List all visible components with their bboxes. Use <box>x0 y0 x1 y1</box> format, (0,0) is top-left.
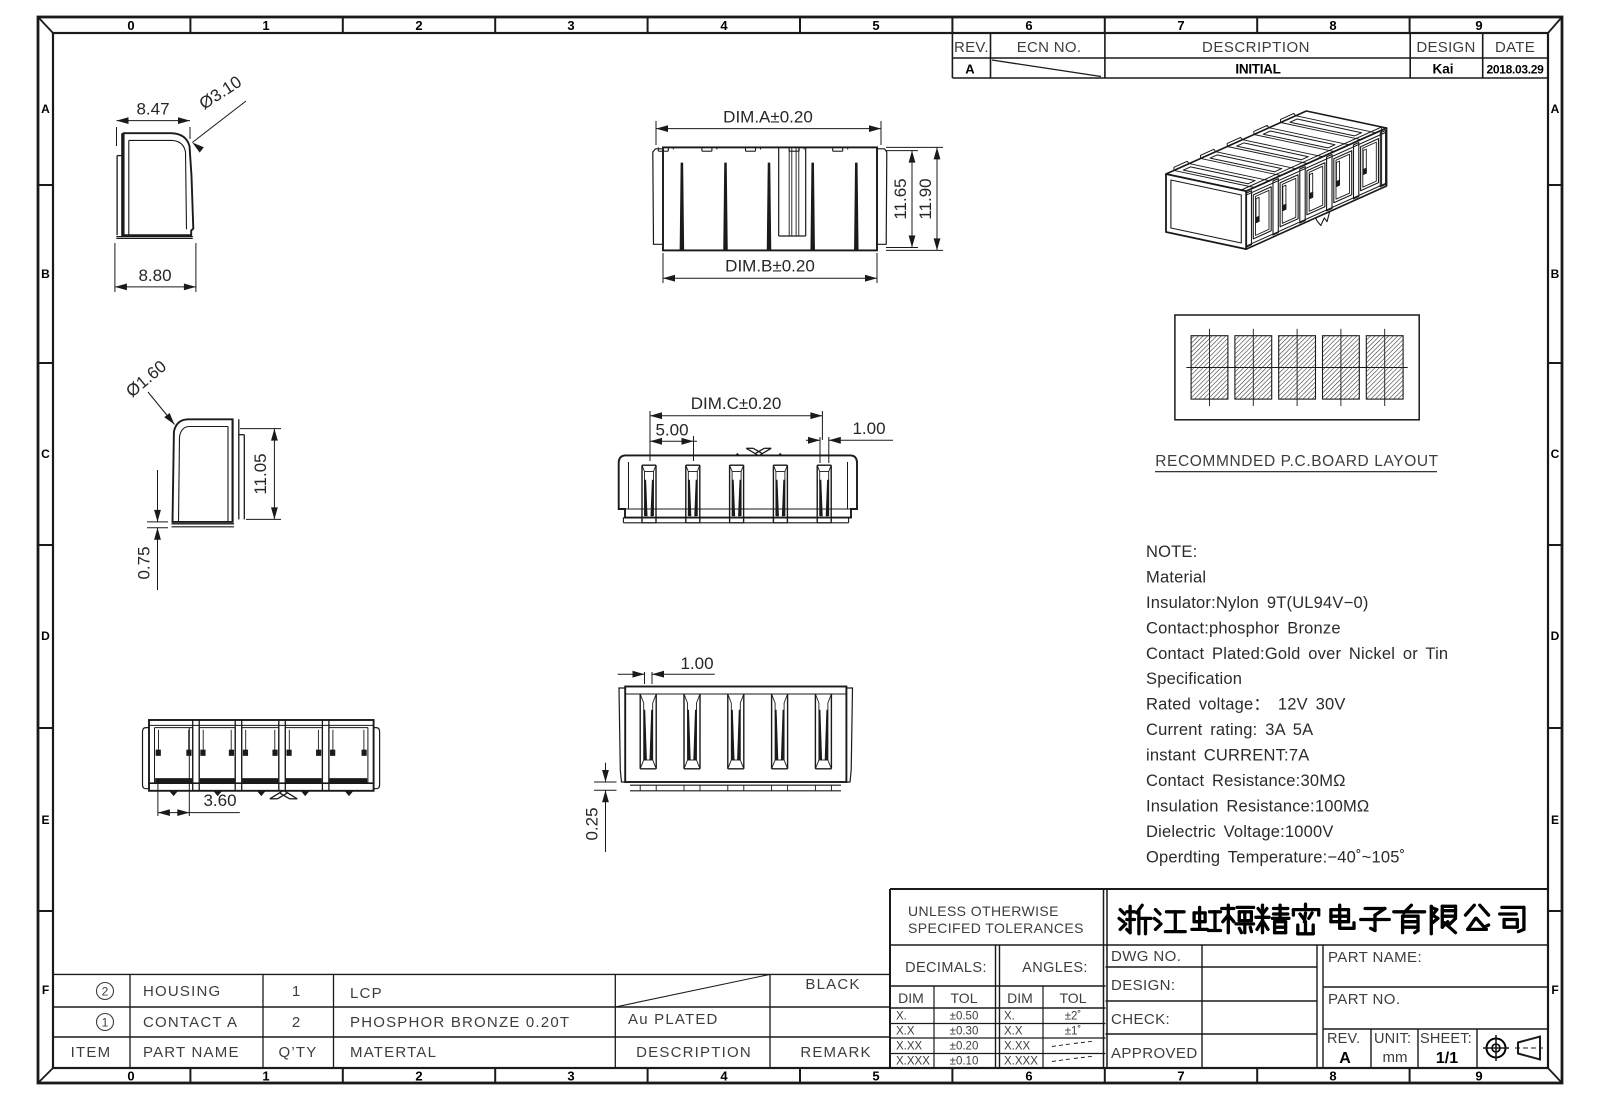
svg-text:1: 1 <box>262 18 269 33</box>
svg-text:DWG NO.: DWG NO. <box>1111 948 1181 965</box>
svg-text:SPECIFED TOLERANCES: SPECIFED TOLERANCES <box>908 920 1084 936</box>
svg-text:5.00: 5.00 <box>655 421 688 440</box>
svg-text:X.XX: X.XX <box>896 1041 923 1053</box>
svg-text:DESIGN: DESIGN <box>1416 39 1475 56</box>
svg-text:11.05: 11.05 <box>251 453 270 494</box>
svg-text:X.XXX: X.XXX <box>896 1056 930 1068</box>
svg-text:0.25: 0.25 <box>583 807 602 840</box>
svg-text:D: D <box>1551 629 1560 643</box>
svg-text:8: 8 <box>1329 1069 1336 1084</box>
svg-text:Contact Plated:Gold over Ni: Contact Plated:Gold over Nickel or Tin <box>1146 645 1448 663</box>
svg-text:DIM.C±0.20: DIM.C±0.20 <box>691 394 782 413</box>
svg-text:INITIAL: INITIAL <box>1235 62 1280 77</box>
svg-text:Kai: Kai <box>1432 62 1453 77</box>
svg-text:±0.10: ±0.10 <box>950 1056 979 1068</box>
svg-text:DATE: DATE <box>1495 39 1535 56</box>
svg-text:E: E <box>41 813 49 827</box>
svg-text:PHOSPHOR BRONZE 0.20T: PHOSPHOR BRONZE 0.20T <box>350 1014 570 1031</box>
svg-text:NOTE:: NOTE: <box>1146 543 1197 561</box>
svg-text:2: 2 <box>102 985 109 999</box>
svg-text:C: C <box>41 447 50 461</box>
svg-text:±0.50: ±0.50 <box>950 1011 979 1023</box>
svg-text:X.: X. <box>896 1011 907 1023</box>
svg-text:4: 4 <box>720 1069 728 1084</box>
svg-text:2: 2 <box>415 18 422 33</box>
svg-text:9: 9 <box>1475 18 1482 33</box>
svg-text:X.: X. <box>1004 1011 1015 1023</box>
svg-text:ITEM: ITEM <box>71 1044 112 1061</box>
svg-text:6: 6 <box>1025 18 1032 33</box>
svg-text:3: 3 <box>567 18 574 33</box>
svg-text:1: 1 <box>102 1016 109 1030</box>
svg-text:UNLESS OTHERWISE: UNLESS OTHERWISE <box>908 903 1059 919</box>
svg-text:Material: Material <box>1146 569 1206 587</box>
svg-text:0: 0 <box>127 18 134 33</box>
svg-text:4: 4 <box>720 18 728 33</box>
svg-text:X.X: X.X <box>896 1026 915 1038</box>
svg-text:±1˚: ±1˚ <box>1065 1026 1082 1038</box>
svg-text:3: 3 <box>567 1069 574 1084</box>
svg-text:C: C <box>1551 447 1560 461</box>
svg-text:DECIMALS:: DECIMALS: <box>905 960 987 976</box>
svg-text:9: 9 <box>1475 1069 1482 1084</box>
svg-text:B: B <box>41 267 50 281</box>
svg-text:8.47: 8.47 <box>136 100 169 119</box>
svg-text:mm: mm <box>1383 1049 1408 1066</box>
svg-text:RECOMMNDED P.C.BOARD LAYOUT: RECOMMNDED P.C.BOARD LAYOUT <box>1155 453 1438 470</box>
svg-text:ANGLES:: ANGLES: <box>1022 960 1088 976</box>
svg-text:LCP: LCP <box>350 985 383 1002</box>
svg-text:A: A <box>41 102 50 116</box>
svg-text:ECN NO.: ECN NO. <box>1017 39 1082 56</box>
svg-text:PART NO.: PART NO. <box>1328 991 1400 1008</box>
svg-text:TOL: TOL <box>951 990 978 1006</box>
svg-text:REV.: REV. <box>1327 1031 1360 1047</box>
svg-text:11.65: 11.65 <box>891 178 910 219</box>
svg-text:PART NAME: PART NAME <box>143 1044 240 1061</box>
svg-text:5: 5 <box>872 18 879 33</box>
svg-text:1.00: 1.00 <box>852 419 885 438</box>
svg-text:TOL: TOL <box>1060 990 1087 1006</box>
svg-text:Insulator:Nylon 9T(UL94V−0): Insulator:Nylon 9T(UL94V−0) <box>1146 594 1369 612</box>
svg-text:UNIT:: UNIT: <box>1374 1031 1411 1047</box>
svg-text:CHECK:: CHECK: <box>1111 1011 1170 1028</box>
svg-text:11.90: 11.90 <box>916 178 935 219</box>
svg-text:X.X: X.X <box>1004 1026 1023 1038</box>
svg-text:A: A <box>965 62 975 77</box>
svg-text:Q’TY: Q’TY <box>279 1044 318 1061</box>
svg-text:DIM: DIM <box>1007 990 1033 1006</box>
svg-text:instant CURRENT:7A: instant CURRENT:7A <box>1146 747 1309 765</box>
svg-text:B: B <box>1551 267 1560 281</box>
svg-text:2: 2 <box>292 1014 300 1031</box>
svg-text:F: F <box>1551 983 1558 997</box>
svg-text:Insulation Resistance:100MΩ: Insulation Resistance:100MΩ <box>1146 798 1369 816</box>
svg-text:DIM.A±0.20: DIM.A±0.20 <box>723 108 813 127</box>
svg-text:Contact Resistance:30MΩ: Contact Resistance:30MΩ <box>1146 772 1346 790</box>
svg-text:F: F <box>42 983 49 997</box>
svg-text:0.75: 0.75 <box>135 546 154 579</box>
svg-text:Dielectric Voltage:1000V: Dielectric Voltage:1000V <box>1146 823 1334 841</box>
svg-text:2018.03.29: 2018.03.29 <box>1486 63 1544 77</box>
svg-text:5: 5 <box>872 1069 879 1084</box>
svg-text:1.00: 1.00 <box>680 654 713 673</box>
svg-text:X.XXX: X.XXX <box>1004 1056 1038 1068</box>
svg-text:D: D <box>41 629 50 643</box>
svg-text:8: 8 <box>1329 18 1336 33</box>
svg-text:7: 7 <box>1177 1069 1184 1084</box>
svg-text:CONTACT A: CONTACT A <box>143 1014 238 1031</box>
svg-text:Specification: Specification <box>1146 670 1242 688</box>
svg-text:REV.: REV. <box>954 39 989 56</box>
svg-text:0: 0 <box>127 1069 134 1084</box>
svg-text:DIM.B±0.20: DIM.B±0.20 <box>725 257 815 276</box>
svg-text:±2˚: ±2˚ <box>1065 1011 1082 1023</box>
svg-text:2: 2 <box>415 1069 422 1084</box>
svg-text:DESIGN:: DESIGN: <box>1111 977 1175 994</box>
svg-text:1: 1 <box>292 983 300 1000</box>
svg-text:Rated voltage： 12V 30V: Rated voltage： 12V 30V <box>1146 696 1346 714</box>
svg-text:Current rating: 3A 5A: Current rating: 3A 5A <box>1146 721 1313 739</box>
svg-text:SHEET:: SHEET: <box>1420 1031 1472 1047</box>
svg-text:Contact:phosphor Bronze: Contact:phosphor Bronze <box>1146 619 1341 637</box>
svg-text:1/1: 1/1 <box>1436 1050 1458 1067</box>
svg-text:±0.30: ±0.30 <box>950 1026 979 1038</box>
svg-text:A: A <box>1339 1050 1351 1067</box>
svg-text:BLACK: BLACK <box>805 976 860 993</box>
svg-text:Operdting Temperature:−40˚~10: Operdting Temperature:−40˚~105˚ <box>1146 848 1405 866</box>
svg-text:6: 6 <box>1025 1069 1032 1084</box>
svg-text:8.80: 8.80 <box>138 266 171 285</box>
svg-text:X.XX: X.XX <box>1004 1041 1031 1053</box>
svg-text:3.60: 3.60 <box>203 791 236 810</box>
svg-text:APPROVED: APPROVED <box>1111 1045 1198 1062</box>
svg-text:DIM: DIM <box>898 990 924 1006</box>
svg-text:E: E <box>1551 813 1559 827</box>
svg-text:DESCRIPTION: DESCRIPTION <box>1202 39 1310 56</box>
svg-text:HOUSING: HOUSING <box>143 983 221 1000</box>
svg-text:MATERTAL: MATERTAL <box>350 1044 437 1061</box>
svg-text:1: 1 <box>262 1069 269 1084</box>
svg-text:DESCRIPTION: DESCRIPTION <box>636 1044 752 1061</box>
svg-text:±0.20: ±0.20 <box>950 1041 979 1053</box>
svg-text:PART NAME:: PART NAME: <box>1328 949 1422 966</box>
svg-text:7: 7 <box>1177 18 1184 33</box>
svg-text:Au PLATED: Au PLATED <box>628 1011 719 1028</box>
svg-text:A: A <box>1551 102 1560 116</box>
svg-text:REMARK: REMARK <box>800 1044 871 1061</box>
